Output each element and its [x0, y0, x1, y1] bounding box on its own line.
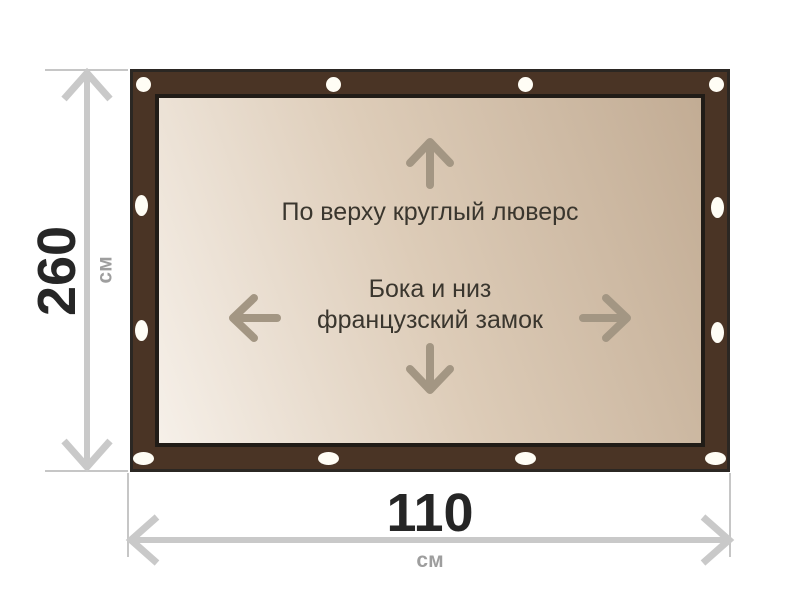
annotation-sides-line2: французский замок [230, 305, 630, 335]
grommet-icon [518, 77, 533, 92]
grommet-icon [318, 452, 339, 465]
product-dimension-diagram: { "diagram": { "annotations": { "top": "… [0, 0, 800, 600]
grommet-icon [711, 322, 724, 343]
grommet-icon [709, 77, 724, 92]
arrowhead-down-icon [64, 441, 110, 467]
arrowhead-left-icon [131, 517, 157, 563]
grommet-icon [711, 197, 724, 218]
grommet-icon [133, 452, 154, 465]
tarp-panel [130, 69, 730, 472]
tarp-canvas [155, 94, 705, 447]
grommet-icon [135, 195, 148, 216]
annotation-sides-line1: Бока и низ [230, 274, 630, 304]
width-value: 110 [230, 486, 630, 540]
width-unit: см [230, 550, 630, 571]
grommet-icon [705, 452, 726, 465]
arrowhead-right-icon [703, 517, 729, 563]
grommet-icon [136, 77, 151, 92]
grommet-icon [515, 452, 536, 465]
grommet-icon [135, 320, 148, 341]
height-value: 260 [30, 226, 84, 316]
grommet-icon [326, 77, 341, 92]
annotation-top-grommets: По верху круглый люверс [230, 197, 630, 227]
height-unit: см [95, 256, 116, 283]
arrowhead-up-icon [64, 73, 110, 99]
